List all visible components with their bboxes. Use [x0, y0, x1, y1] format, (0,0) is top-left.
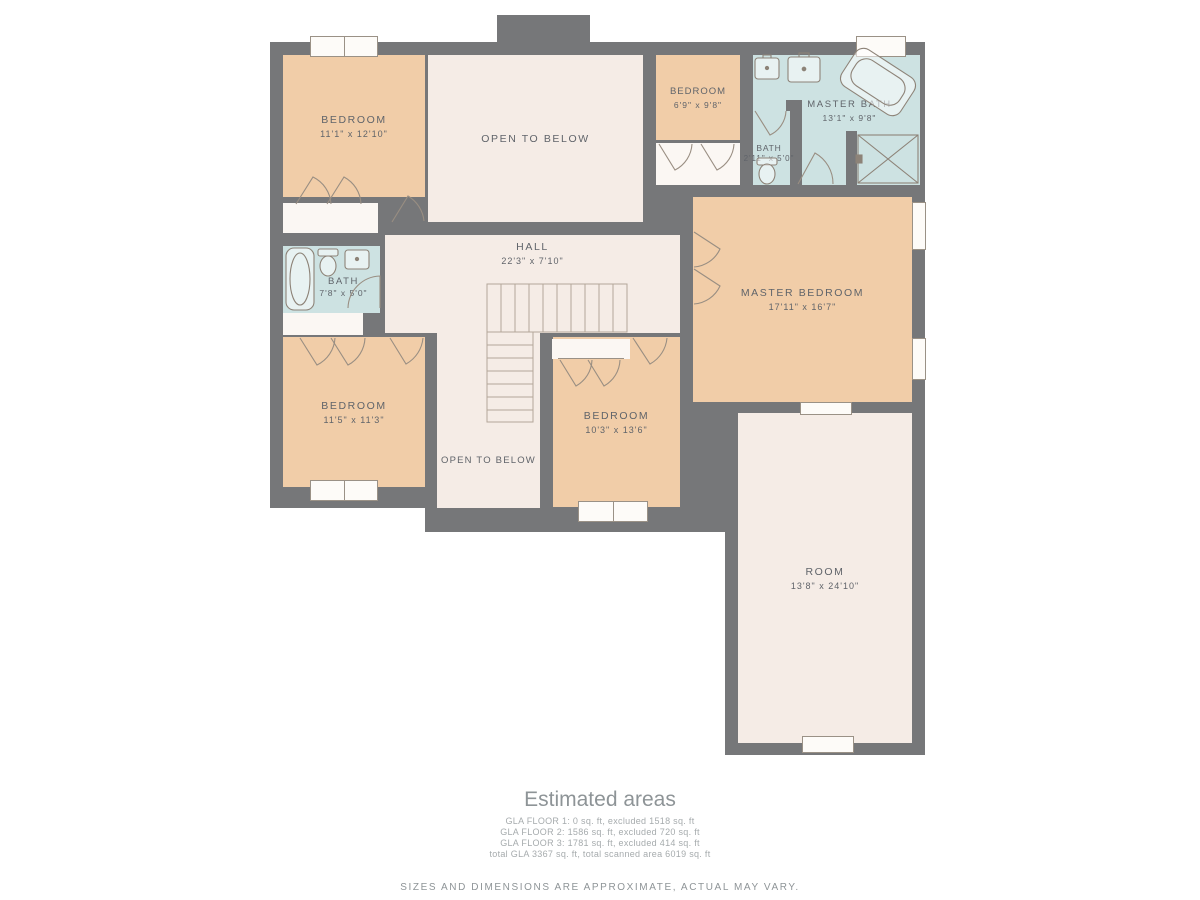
room-bedroom-top: BEDROOM 6'9" x 9'8" [656, 55, 740, 140]
window [578, 501, 648, 522]
room-dims: 22'3" x 7'10" [501, 256, 563, 266]
room-label: MASTER BATH 13'1" x 9'8" [807, 99, 891, 123]
room-label: OPEN TO BELOW [441, 455, 536, 466]
estimated-areas-title: Estimated areas [0, 788, 1200, 812]
window [310, 480, 378, 501]
room-bedroom-bottom-middle: BEDROOM 10'3" x 13'6" [553, 337, 680, 507]
room-name: HALL [501, 241, 563, 253]
room-dims: 7'8" x 5'0" [319, 288, 367, 298]
room-name: BATH [744, 143, 795, 153]
gla-total: total GLA 3367 sq. ft, total scanned are… [0, 849, 1200, 860]
room-master-bedroom: MASTER BEDROOM 17'11" x 16'7" [693, 197, 912, 402]
room-dims: 17'11" x 16'7" [741, 302, 864, 312]
room-dims: 2'11" x 5'0" [744, 154, 795, 163]
room-hall: HALL 22'3" x 7'10" [385, 235, 680, 333]
window [310, 36, 378, 57]
footer: Estimated areas GLA FLOOR 1: 0 sq. ft, e… [0, 788, 1200, 893]
room-dims: 13'1" x 9'8" [807, 113, 891, 123]
room-label: BATH 7'8" x 5'0" [319, 276, 367, 298]
gla-floor-3: GLA FLOOR 3: 1781 sq. ft, excluded 414 s… [0, 838, 1200, 849]
room-name: BEDROOM [321, 400, 386, 412]
room-label: MASTER BEDROOM 17'11" x 16'7" [741, 287, 864, 312]
closet-slider-line [558, 358, 624, 359]
room-dims: 10'3" x 13'6" [584, 425, 649, 435]
floor-plan-page: BEDROOM 11'1" x 12'10" OPEN TO BELOW BED… [0, 0, 1200, 900]
room-label: BEDROOM 11'5" x 11'3" [321, 400, 386, 425]
room-name: MASTER BATH [807, 99, 891, 110]
gla-floor-1: GLA FLOOR 1: 0 sq. ft, excluded 1518 sq.… [0, 816, 1200, 827]
closet-bottom-middle [552, 339, 630, 359]
room-name: BEDROOM [670, 86, 726, 97]
room-name: MASTER BEDROOM [741, 287, 864, 299]
room-label: BATH 2'11" x 5'0" [744, 143, 795, 163]
room-open-to-below-top: OPEN TO BELOW [428, 55, 643, 222]
room-name: BATH [319, 276, 367, 287]
room-label: ROOM 13'8" x 24'10" [791, 566, 859, 591]
room-open-to-below-bottom: OPEN TO BELOW [437, 333, 540, 508]
window [802, 736, 854, 753]
disclaimer: SIZES AND DIMENSIONS ARE APPROXIMATE, AC… [0, 882, 1200, 893]
chimney-wall [497, 15, 590, 45]
room-name: BEDROOM [320, 114, 388, 126]
room-name: OPEN TO BELOW [441, 455, 536, 466]
room-name: BEDROOM [584, 410, 649, 422]
room-name: ROOM [791, 566, 859, 578]
room-bedroom-top-left: BEDROOM 11'1" x 12'10" [283, 55, 425, 197]
room-room: ROOM 13'8" x 24'10" [738, 413, 912, 743]
window [800, 402, 852, 415]
window [856, 36, 906, 57]
room-dims: 11'5" x 11'3" [321, 415, 386, 425]
room-dims: 13'8" x 24'10" [791, 581, 859, 591]
closet-bath [283, 313, 363, 335]
gla-floor-2: GLA FLOOR 2: 1586 sq. ft, excluded 720 s… [0, 827, 1200, 838]
room-label: BEDROOM 6'9" x 9'8" [670, 86, 726, 110]
room-label: HALL 22'3" x 7'10" [501, 241, 563, 266]
room-bedroom-bottom-left: BEDROOM 11'5" x 11'3" [283, 337, 425, 487]
shower-wall [846, 131, 857, 185]
room-dims: 11'1" x 12'10" [320, 129, 388, 139]
closet-top-left [283, 203, 378, 233]
room-dims: 6'9" x 9'8" [670, 100, 726, 110]
room-label: BEDROOM 10'3" x 13'6" [584, 410, 649, 435]
window [912, 202, 926, 250]
room-name: OPEN TO BELOW [481, 133, 590, 145]
room-label: BEDROOM 11'1" x 12'10" [320, 114, 388, 139]
landing [656, 143, 740, 185]
window [912, 338, 926, 380]
room-bath: BATH 7'8" x 5'0" [283, 246, 380, 313]
room-bath-small-label: BATH 2'11" x 5'0" [738, 138, 800, 168]
room-label: OPEN TO BELOW [481, 133, 590, 145]
